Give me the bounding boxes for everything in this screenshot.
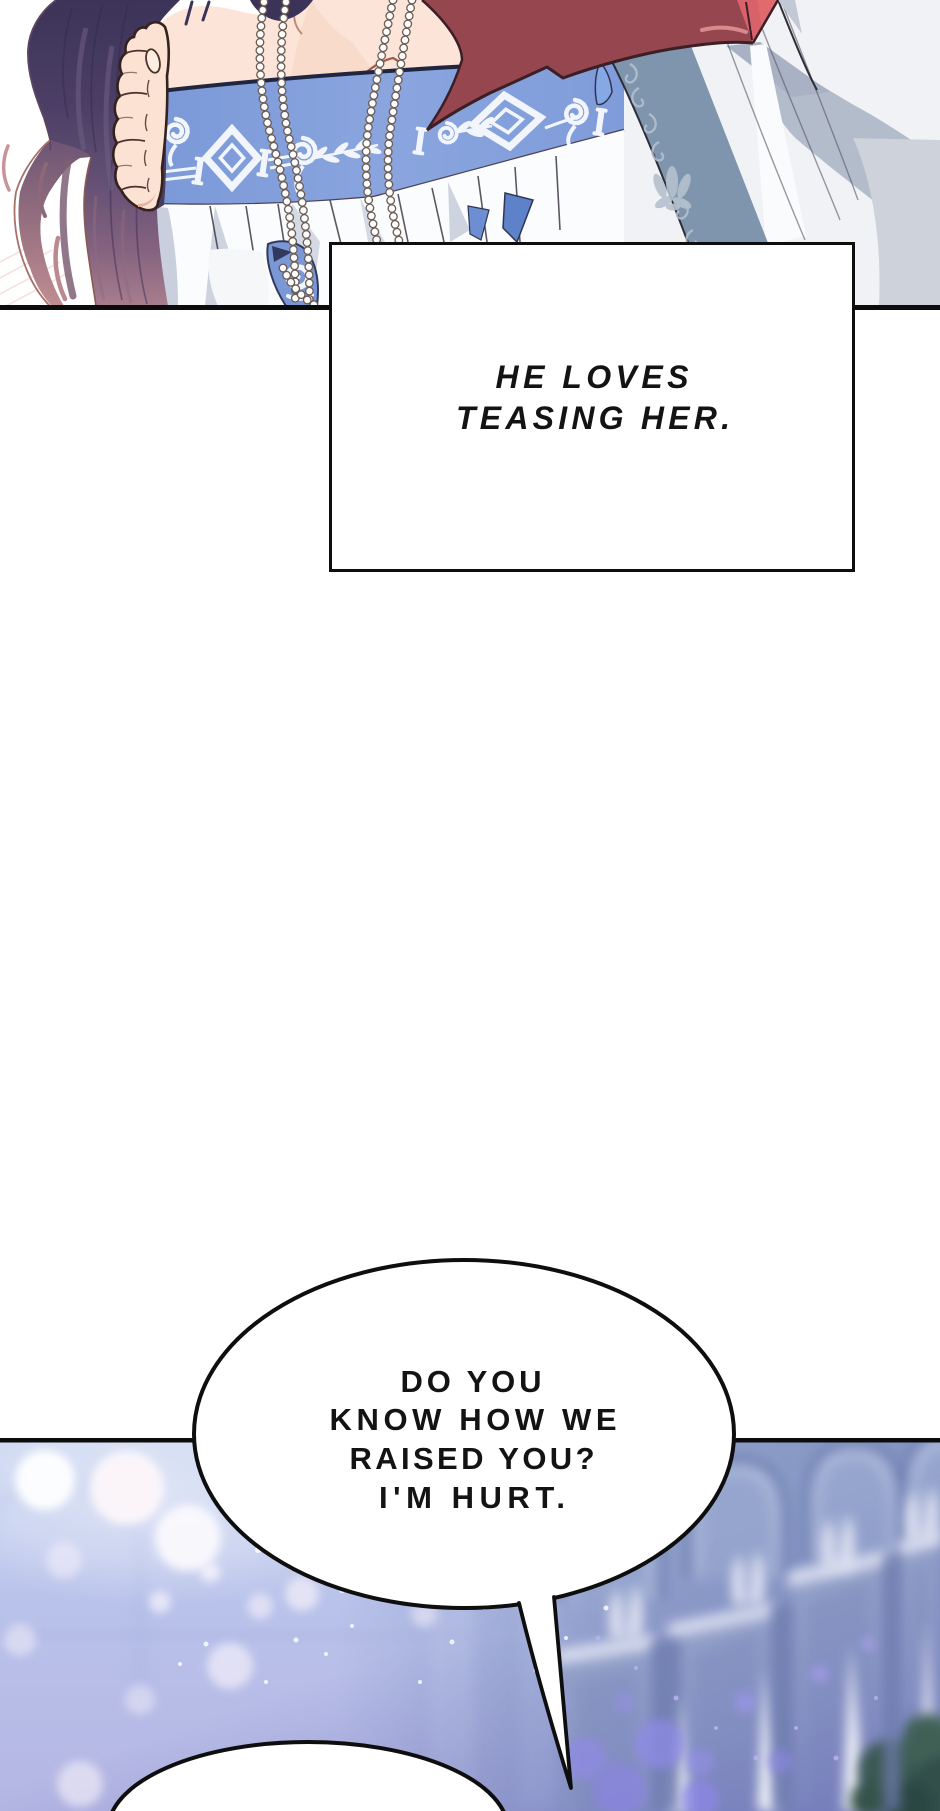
svg-text:KNOW HOW WE: KNOW HOW WE	[330, 1402, 617, 1437]
svg-text:TEASING HER.: TEASING HER.	[456, 400, 730, 436]
svg-text:RAISED YOU?: RAISED YOU?	[350, 1441, 595, 1476]
svg-text:DO YOU: DO YOU	[401, 1364, 542, 1399]
svg-text:I'M HURT.: I'M HURT.	[379, 1480, 565, 1515]
svg-text:HE LOVES: HE LOVES	[496, 359, 690, 395]
